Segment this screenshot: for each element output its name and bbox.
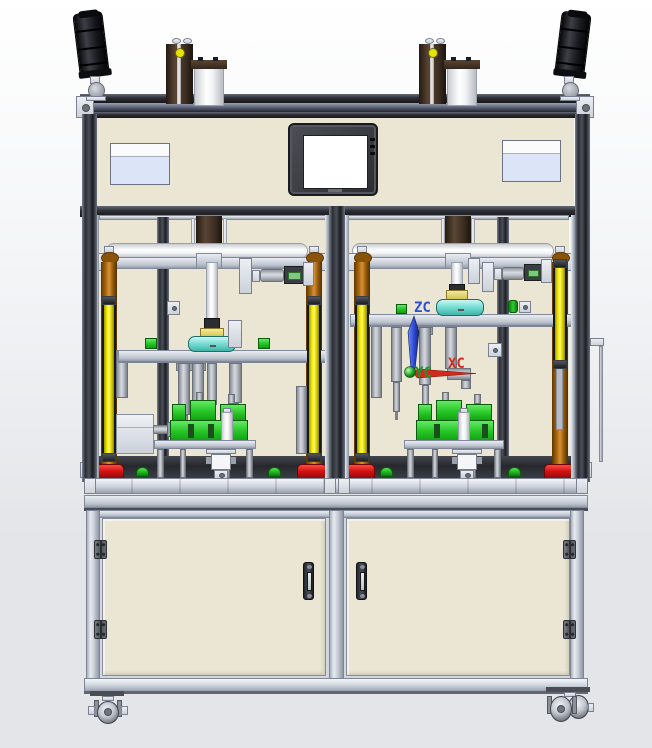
sensor-cylinder: [502, 267, 524, 280]
cabinet-post-left: [86, 510, 100, 680]
cylinder-arm: [444, 60, 480, 69]
mount-plate: [167, 301, 180, 315]
bolt-hole: [172, 306, 177, 311]
column-sleeve: [371, 318, 382, 398]
stand-leg: [494, 449, 501, 478]
rail-div-block: [338, 478, 350, 494]
tower-mount-foot: [86, 96, 106, 101]
hinge-seam: [100, 541, 102, 558]
light-curtain-cap: [355, 453, 369, 462]
under-table-clamp: [452, 449, 482, 479]
top-frame-rail: [80, 103, 590, 112]
exterior-sensor-rod: [599, 346, 603, 462]
probe-point: [395, 412, 398, 420]
label-plate-right: [502, 140, 561, 182]
frame-column-right: [575, 114, 590, 482]
sensor-end-bracket: [303, 262, 314, 286]
clamp-body: [211, 454, 231, 470]
hinge-seam: [569, 621, 571, 638]
sensor-assembly: [238, 258, 316, 298]
csys-y-label: YC: [415, 365, 432, 381]
sensor-assembly: [468, 256, 554, 296]
door-hinge: [94, 540, 107, 559]
csys-x-label: XC: [448, 356, 465, 372]
sensor-bracket: [239, 258, 252, 294]
csys-z-label: ZC: [414, 300, 431, 316]
curtain-rail: [556, 368, 563, 430]
signal-tower-body: [554, 11, 592, 78]
standoff-block: [228, 320, 242, 348]
hmi-notch: [328, 189, 342, 192]
label-plate-left: [110, 143, 170, 185]
cylinder-arm: [191, 60, 227, 69]
table-stop-button[interactable]: [508, 467, 521, 477]
table-profile-rail: [84, 495, 588, 508]
light-curtain-cap: [553, 259, 567, 268]
door-hinge: [563, 540, 576, 559]
clamp-tab: [206, 457, 211, 464]
tower-mount-foot: [560, 96, 580, 101]
csys-origin-sphere: [405, 367, 416, 378]
door-hinge: [94, 620, 107, 639]
stand-leg: [407, 449, 414, 478]
mount-plate: [519, 301, 531, 313]
sensor-knob: [494, 268, 502, 280]
tower-cap: [567, 9, 588, 18]
tower-segment-line: [556, 61, 584, 66]
signal-tower-body: [72, 11, 110, 78]
tower-segment-line: [75, 28, 103, 33]
cabinet-door-left[interactable]: [102, 518, 326, 676]
table-stop-button[interactable]: [380, 467, 393, 477]
fixture-stand-plate: [404, 440, 504, 449]
fixture-slot: [188, 424, 194, 438]
stand-leg: [246, 449, 253, 478]
sensor-end-bracket: [541, 259, 552, 283]
tower-segment-line: [78, 46, 106, 51]
bolt-hole: [582, 104, 590, 112]
cad-viewport[interactable]: ZC YC XC: [0, 0, 652, 748]
top-cylinder-left: [166, 38, 230, 106]
top-frame-rail: [80, 94, 590, 103]
stand-leg: [157, 449, 164, 478]
light-curtain-cap: [553, 360, 567, 369]
signal-tower-right: [550, 10, 586, 102]
light-curtain: [355, 305, 369, 453]
exterior-sensor-bracket: [590, 338, 604, 346]
label-plate-header: [503, 141, 560, 154]
fixture-stand-plate: [154, 440, 256, 449]
fixture-post: [474, 394, 481, 404]
caster-hub: [104, 708, 112, 716]
beam-stop: [258, 338, 270, 349]
fixture-slot: [482, 424, 488, 438]
hinge-seam: [569, 541, 571, 558]
door-handle-right[interactable]: [356, 562, 367, 600]
cabinet-bottom-rail: [84, 678, 588, 692]
handle-slot: [307, 572, 312, 591]
caster-right: [546, 687, 596, 737]
sensor-l-piece: [468, 258, 480, 284]
clamp-tab: [477, 457, 482, 464]
light-curtain-cap: [355, 296, 369, 305]
sensor-label: [528, 270, 539, 277]
csys-z-axis: [408, 316, 419, 370]
light-curtain-cap: [307, 453, 321, 462]
fixture-block: [190, 400, 216, 422]
arm-bolt: [198, 57, 203, 61]
bolt-hole: [82, 104, 90, 112]
indicator-dot: [175, 48, 185, 58]
fixture-slot: [434, 424, 440, 438]
handle-screw: [307, 565, 312, 569]
clamp-tab: [452, 457, 457, 464]
reservoir-cylinder: [447, 64, 477, 106]
signal-tower-left: [78, 10, 114, 102]
hinge-seam: [100, 621, 102, 638]
hmi-button[interactable]: [370, 145, 375, 148]
light-curtain: [553, 268, 567, 360]
cabinet-post-center: [329, 510, 344, 680]
sensor-cylinder: [260, 269, 284, 282]
clamp-tab: [231, 457, 236, 464]
reservoir-cylinder: [194, 64, 224, 106]
light-curtain: [307, 305, 321, 453]
column-sleeve: [296, 386, 307, 454]
indicator-dot: [428, 48, 438, 58]
stand-leg: [432, 449, 438, 478]
table-stop-button[interactable]: [136, 467, 149, 477]
cabinet-door-right[interactable]: [346, 518, 570, 676]
handle-screw: [360, 565, 365, 569]
tower-cap: [78, 9, 99, 18]
sensor-knob: [252, 270, 260, 282]
clamp-body: [457, 454, 477, 470]
under-table-clamp: [206, 449, 236, 479]
table-profile-rail: [84, 478, 588, 494]
disc-mark: [210, 345, 216, 347]
tower-segment-line: [558, 46, 586, 51]
cabinet-post-right: [570, 510, 584, 680]
arm-bolt: [451, 57, 456, 61]
junction-box-seam: [117, 427, 153, 428]
arm-bolt: [213, 57, 218, 61]
caster-nut: [588, 703, 594, 712]
rail-end-cap: [84, 478, 96, 494]
bolt-hole: [523, 305, 528, 310]
tower-segment-line: [561, 28, 589, 33]
door-handle-left[interactable]: [303, 562, 314, 600]
light-curtain-cap: [102, 453, 116, 462]
handle-screw: [307, 594, 312, 598]
hmi-touchscreen[interactable]: [288, 123, 378, 196]
rail-div-block: [324, 478, 336, 494]
stand-leg: [180, 449, 186, 478]
handle-screw: [360, 594, 365, 598]
sensor-label: [288, 272, 301, 280]
caster-hub: [557, 705, 565, 713]
sensor-connector: [284, 266, 304, 284]
fixture-pin: [221, 412, 233, 442]
csys-triad: ZC YC XC: [390, 294, 500, 386]
frame-column-left: [82, 114, 97, 482]
label-plate-header: [111, 144, 169, 157]
light-curtain-cap: [102, 296, 116, 305]
fixture-post: [228, 394, 235, 404]
light-curtain: [102, 305, 116, 453]
fixture-slot: [208, 424, 214, 438]
caster-nut: [121, 706, 128, 715]
press-rod: [206, 262, 218, 322]
hmi-button[interactable]: [370, 138, 375, 141]
frame-inner-post: [345, 215, 349, 482]
frame-column-center: [329, 206, 345, 482]
sensor-bracket: [482, 262, 494, 292]
junction-box: [116, 414, 154, 454]
rail-end-cap: [576, 478, 588, 494]
bottom-shadow-line: [84, 691, 588, 694]
caster-nut: [88, 706, 95, 715]
sensor-connector: [524, 264, 542, 281]
caster-fork: [572, 696, 577, 714]
top-cylinder-right: [419, 38, 483, 106]
table-stop-button[interactable]: [268, 467, 281, 477]
handle-slot: [360, 572, 365, 591]
beam-stop: [145, 338, 157, 349]
hmi-button[interactable]: [370, 152, 375, 155]
probe-tip: [393, 382, 400, 412]
arm-bolt: [466, 57, 471, 61]
caster-left: [88, 691, 130, 735]
tower-segment-line: [80, 61, 108, 66]
door-hinge: [563, 620, 576, 639]
hmi-screen[interactable]: [303, 135, 368, 189]
beam-stop-cylinder: [508, 300, 518, 313]
fixture-pin: [458, 412, 470, 442]
